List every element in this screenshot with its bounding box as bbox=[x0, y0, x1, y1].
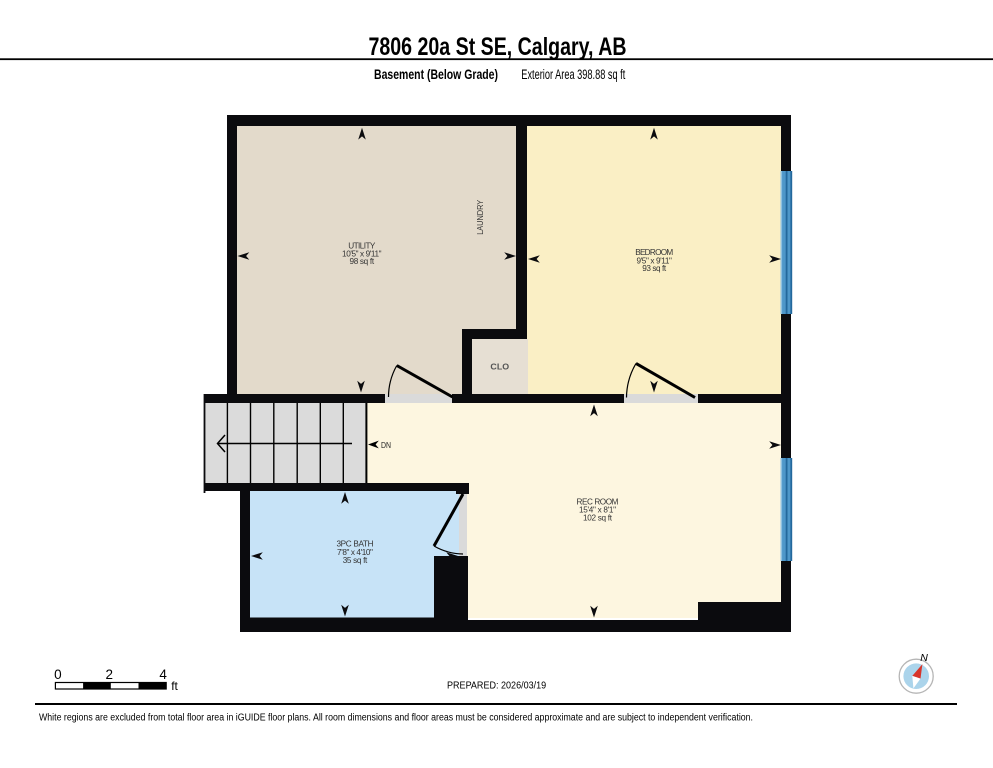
svg-text:White regions are excluded fro: White regions are excluded from total fl… bbox=[39, 713, 753, 724]
svg-text:35 sq ft: 35 sq ft bbox=[343, 556, 368, 565]
svg-text:0: 0 bbox=[54, 667, 62, 682]
svg-text:2: 2 bbox=[106, 667, 114, 682]
svg-text:102 sq ft: 102 sq ft bbox=[583, 514, 613, 523]
svg-text:ft: ft bbox=[171, 679, 178, 693]
svg-text:7806 20a St SE, Calgary, AB: 7806 20a St SE, Calgary, AB bbox=[369, 33, 627, 61]
svg-text:N: N bbox=[920, 652, 928, 664]
svg-text:98 sq ft: 98 sq ft bbox=[350, 257, 375, 266]
svg-text:Basement (Below Grade): Basement (Below Grade) bbox=[374, 67, 498, 82]
svg-text:CLO: CLO bbox=[490, 362, 509, 371]
svg-text:LAUNDRY: LAUNDRY bbox=[476, 199, 485, 234]
svg-text:Exterior Area 398.88 sq ft: Exterior Area 398.88 sq ft bbox=[521, 67, 625, 82]
svg-text:93 sq ft: 93 sq ft bbox=[642, 264, 667, 273]
svg-text:4: 4 bbox=[159, 667, 167, 682]
svg-text:PREPARED: 2026/03/19: PREPARED: 2026/03/19 bbox=[447, 680, 546, 692]
svg-text:DN: DN bbox=[381, 441, 391, 450]
